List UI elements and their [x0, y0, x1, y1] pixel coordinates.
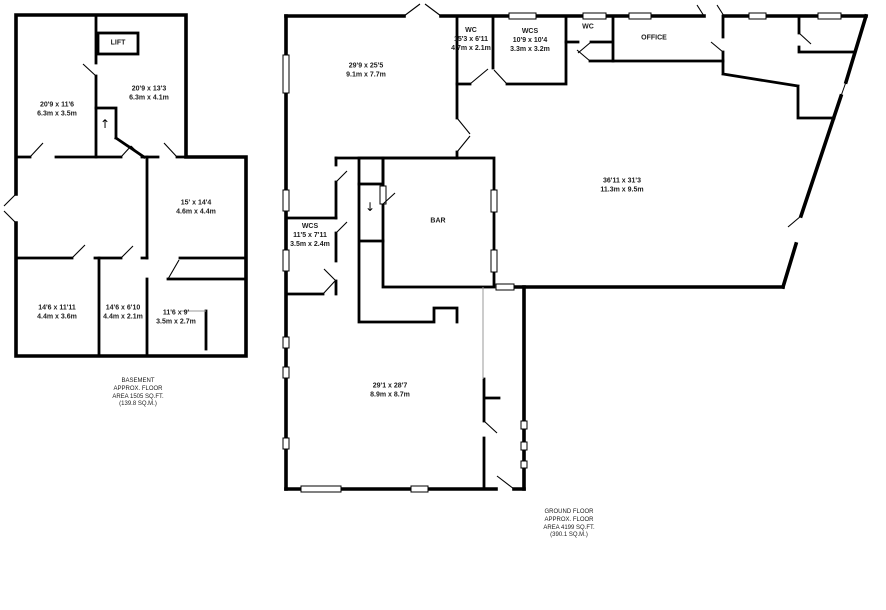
floorplan-page: 20'9 x 11'6 6.3m x 3.5m 20'9 x 13'3 6.3m… — [0, 0, 886, 610]
room-label-ground-3: 29'1 x 28'7 8.9m x 8.7m — [370, 382, 410, 400]
room-label-basement-5: 14'6 x 6'10 4.4m x 2.1m — [103, 304, 143, 322]
room-label-basement-1: 20'9 x 11'6 6.3m x 3.5m — [37, 101, 77, 119]
room-label-ground-2: 36'11 x 31'3 11.3m x 9.5m — [600, 177, 643, 195]
address-title: 5 MAIN STREET — [18, 535, 886, 610]
stairs-down-arrow-icon: ↓ — [365, 200, 375, 214]
room-label-office: OFFICE — [641, 35, 667, 44]
stairs-up-arrow-icon: ↑ — [100, 117, 110, 131]
room-label-wc-2: WC — [582, 24, 594, 33]
room-label-basement-3: 15' x 14'4 4.6m x 4.4m — [176, 199, 216, 217]
room-label-lift: LIFT — [111, 40, 126, 49]
room-label-wc-1: WC 15'3 x 6'11 4.7m x 2.1m — [451, 27, 491, 53]
ground-floor-exterior-walls — [286, 16, 866, 489]
room-label-basement-6: 11'6 x 9' 3.5m x 2.7m — [156, 309, 196, 327]
room-label-wcs-1: WCS 10'9 x 10'4 3.3m x 3.2m — [510, 28, 550, 54]
room-label-bar: BAR — [430, 218, 445, 227]
room-label-ground-1: 29'9 x 25'5 9.1m x 7.7m — [346, 62, 386, 80]
room-divider-lines — [181, 287, 483, 379]
room-label-basement-4: 14'6 x 11'11 4.4m x 3.6m — [37, 304, 77, 322]
basement-area-note: BASEMENT APPROX. FLOOR AREA 1505 SQ.FT. … — [112, 378, 163, 409]
ground-floor-interior-walls — [286, 16, 855, 489]
room-label-basement-2: 20'9 x 13'3 6.3m x 4.1m — [129, 85, 169, 103]
title-block: 5 MAIN STREET TOTAL APPROX. FLOOR AREA 5… — [18, 535, 886, 610]
room-label-wcs-2: WCS 11'5 x 7'11 3.5m x 2.4m — [290, 223, 330, 249]
